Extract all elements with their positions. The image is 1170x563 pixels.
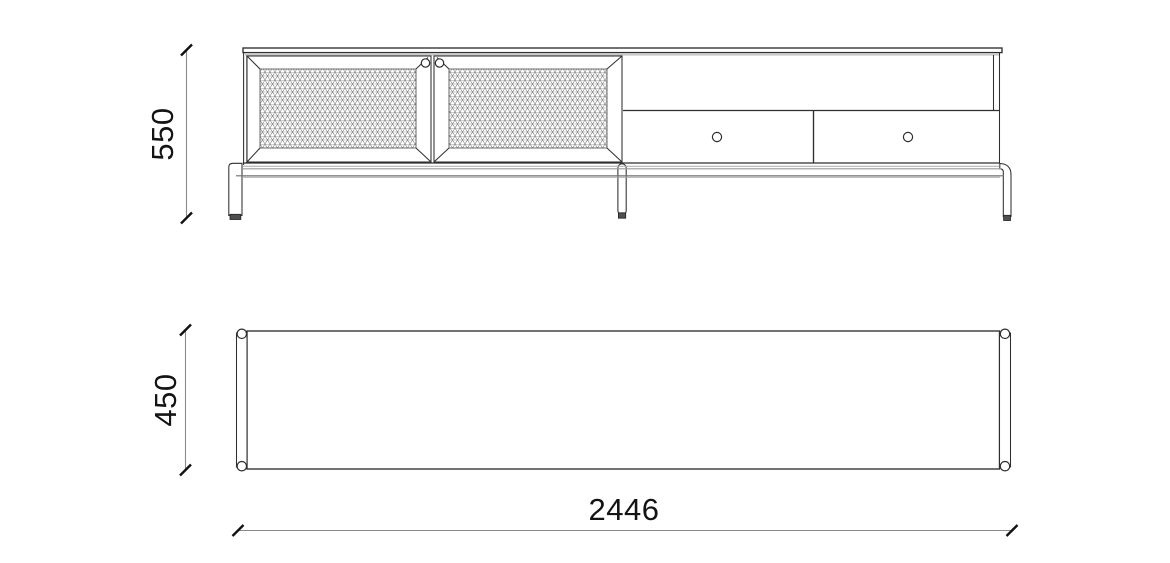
door-knobs bbox=[421, 59, 443, 67]
left-door-knob bbox=[421, 59, 429, 67]
plan-leg-top bbox=[1000, 462, 1009, 471]
right-drawer-knob bbox=[903, 132, 912, 141]
left-leg bbox=[229, 163, 242, 215]
left-drawer-knob bbox=[712, 132, 721, 141]
legs bbox=[229, 163, 1011, 216]
right-leg bbox=[1000, 164, 1011, 217]
middle-foot-cap bbox=[618, 213, 625, 218]
right-foot-cap bbox=[1004, 215, 1011, 220]
right-door-knob bbox=[435, 59, 443, 67]
plan-left-end-rail bbox=[237, 329, 248, 471]
height-dimension bbox=[181, 45, 192, 224]
front-elevation-view bbox=[181, 45, 1011, 224]
left-door-cane-panel bbox=[260, 69, 416, 148]
depth-dimension-label: 450 bbox=[148, 373, 184, 426]
cabinet-right-side-panel bbox=[994, 53, 1000, 163]
plan-right-end-rail bbox=[1000, 329, 1011, 471]
drawing-svg bbox=[0, 0, 1170, 563]
drawers bbox=[712, 111, 912, 164]
width-dimension-label: 2446 bbox=[589, 492, 660, 528]
right-door bbox=[434, 56, 622, 162]
cabinet-left-side-panel bbox=[244, 53, 247, 165]
plan-leg-top bbox=[237, 462, 246, 471]
height-dimension-label: 550 bbox=[145, 107, 181, 160]
left-foot-cap bbox=[230, 214, 241, 219]
right-door-cane-panel bbox=[449, 69, 607, 148]
plan-top-surface bbox=[247, 331, 1000, 469]
technical-drawing-canvas: 550 450 2446 bbox=[0, 0, 1170, 563]
left-door bbox=[247, 56, 431, 162]
foot-caps bbox=[230, 213, 1011, 221]
plan-leg-top bbox=[237, 329, 246, 338]
cabinet-top-panel bbox=[243, 48, 1002, 55]
plan-leg-top bbox=[1000, 329, 1009, 338]
middle-leg bbox=[618, 164, 626, 215]
